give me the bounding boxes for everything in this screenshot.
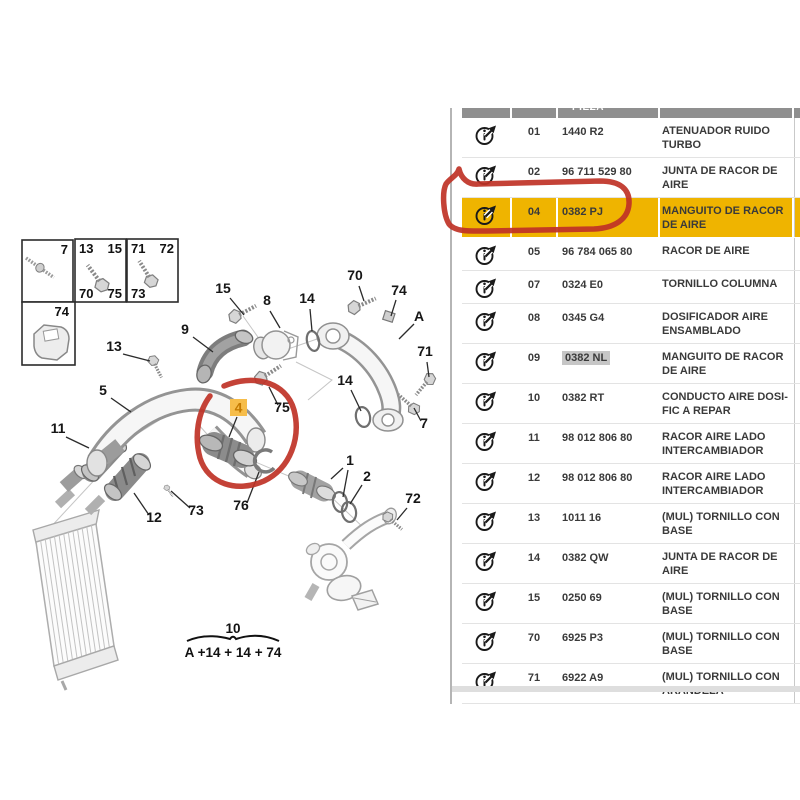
part-code-cell: 0382 QW	[558, 544, 658, 583]
leader-line	[399, 324, 414, 339]
table-row[interactable]: 09 0382 NL MANGUITO DE RACOR DE AIRE	[462, 344, 800, 384]
part-label-70: 70	[347, 267, 363, 283]
legend-num-71: 71	[131, 241, 145, 256]
info-link-button[interactable]	[462, 624, 510, 663]
part-label-1: 1	[346, 452, 354, 468]
part-code-cell: 6925 P3	[558, 624, 658, 663]
table-bottom-strip	[452, 686, 800, 692]
info-link-button[interactable]	[462, 344, 510, 383]
info-arrow-icon	[475, 310, 497, 332]
leader-line	[111, 398, 131, 412]
dosificador-art	[251, 331, 298, 361]
table-header: PIEZA	[462, 108, 800, 118]
table-row[interactable]: 13 1011 16 (MUL) TORNILLO CON BASE	[462, 504, 800, 544]
next-column-sliver	[794, 624, 800, 663]
table-row[interactable]: 07 0324 E0 TORNILLO COLUMNA	[462, 271, 800, 304]
table-row[interactable]: 01 1440 R2 ATENUADOR RUIDO TURBO	[462, 118, 800, 158]
info-link-button[interactable]	[462, 198, 510, 237]
info-arrow-icon	[475, 390, 497, 412]
next-column-sliver	[794, 384, 800, 423]
clamp-76-art	[255, 450, 274, 472]
part-code-cell: 96 711 529 80	[558, 158, 658, 197]
part-label-12: 12	[146, 509, 162, 525]
table-row[interactable]: 10 0382 RT CONDUCTO AIRE DOSI-FIC A REPA…	[462, 384, 800, 424]
info-arrow-icon	[475, 590, 497, 612]
header-cell-icon	[462, 108, 510, 118]
next-column-sliver	[794, 664, 800, 703]
part-label-2: 2	[363, 468, 371, 484]
info-link-button[interactable]	[462, 424, 510, 463]
clip-74-art	[383, 311, 395, 323]
header-cell-next	[794, 108, 800, 118]
part-label-76: 76	[233, 497, 249, 513]
part-code-cell: 0345 G4	[558, 304, 658, 343]
info-arrow-icon	[475, 510, 497, 532]
part-label-75: 75	[274, 399, 290, 415]
part-code-cell: 1440 R2	[558, 118, 658, 157]
table-row[interactable]: 12 98 012 806 80 RACOR AIRE LADO INTERCA…	[462, 464, 800, 504]
info-link-button[interactable]	[462, 118, 510, 157]
part-code-cell: 6922 A9	[558, 664, 658, 703]
next-column-sliver	[794, 464, 800, 503]
part-description-cell: DOSIFICADOR AIRE ENSAMBLADO	[660, 304, 792, 343]
next-column-sliver	[794, 584, 800, 623]
legend-num-7: 7	[61, 242, 68, 257]
info-link-button[interactable]	[462, 584, 510, 623]
part-description-cell: (MUL) TORNILLO CON BASE	[660, 624, 792, 663]
table-row[interactable]: 02 96 711 529 80 JUNTA DE RACOR DE AIRE	[462, 158, 800, 198]
part-label-15: 15	[215, 280, 231, 296]
info-arrow-icon	[475, 164, 497, 186]
info-arrow-icon	[475, 550, 497, 572]
part-description-cell: RACOR DE AIRE	[660, 238, 792, 270]
next-column-sliver	[794, 544, 800, 583]
legend-box-bracket: 74	[22, 302, 75, 365]
part-label-73: 73	[188, 502, 204, 518]
part-label-13: 13	[106, 338, 122, 354]
part-description-cell: CONDUCTO AIRE DOSI-FIC A REPAR	[660, 384, 792, 423]
part-label-4: 4	[235, 400, 243, 416]
legend-num-74: 74	[55, 304, 70, 319]
part-label-72: 72	[405, 490, 421, 506]
part-number-cell: 04	[512, 198, 556, 237]
elbow-hose-art	[195, 328, 255, 384]
part-number-cell: 12	[512, 464, 556, 503]
part-label-14: 14	[299, 290, 315, 306]
part-label-11: 11	[51, 420, 66, 436]
info-arrow-icon	[475, 124, 497, 146]
info-arrow-icon	[475, 630, 497, 652]
intercooler-art	[33, 463, 118, 690]
next-column-sliver	[794, 271, 800, 303]
leader-line	[66, 437, 89, 448]
table-row[interactable]: 08 0345 G4 DOSIFICADOR AIRE ENSAMBLADO	[462, 304, 800, 344]
leader-line	[351, 390, 361, 411]
part-number-cell: 10	[512, 384, 556, 423]
table-row[interactable]: 70 6925 P3 (MUL) TORNILLO CON BASE	[462, 624, 800, 664]
next-column-sliver	[794, 158, 800, 197]
header-cell-desc	[660, 108, 792, 118]
part-code-cell: 0250 69	[558, 584, 658, 623]
part-description-cell: (MUL) TORNILLO CON ARANDELA	[660, 664, 792, 703]
part-description-cell: TORNILLO COLUMNA	[660, 271, 792, 303]
part-label-7: 7	[420, 415, 428, 431]
leader-line	[171, 491, 190, 508]
part-number-cell: 09	[512, 344, 556, 383]
assembly-formula: 10 A +14 + 14 + 74	[185, 621, 282, 660]
next-column-sliver	[794, 424, 800, 463]
part-description-cell: JUNTA DE RACOR DE AIRE	[660, 544, 792, 583]
info-arrow-icon	[475, 470, 497, 492]
legend-box-bolt-2: 71 72 73	[127, 239, 178, 302]
part-description-cell: RACOR AIRE LADO INTERCAMBIADOR	[660, 464, 792, 503]
part-number-cell: 08	[512, 304, 556, 343]
leader-line	[123, 354, 150, 361]
leader-line	[359, 286, 364, 301]
legend-num-70: 70	[79, 286, 93, 301]
table-row[interactable]: 14 0382 QW JUNTA DE RACOR DE AIRE	[462, 544, 800, 584]
part-description-cell: MANGUITO DE RACOR DE AIRE	[660, 344, 792, 383]
part-number-cell: 07	[512, 271, 556, 303]
legend-num-73: 73	[131, 286, 145, 301]
info-arrow-icon	[475, 204, 497, 226]
part-number-cell: 14	[512, 544, 556, 583]
header-cell-code: PIEZA	[558, 108, 658, 118]
leader-line	[310, 309, 312, 331]
part-label-5: 5	[99, 382, 107, 398]
part-code-cell: 98 012 806 80	[558, 424, 658, 463]
part-number-cell: 05	[512, 238, 556, 270]
parts-table-body: 01 1440 R2 ATENUADOR RUIDO TURBO 02 96 7…	[462, 118, 800, 704]
part-number-cell: 71	[512, 664, 556, 703]
leader-line	[350, 485, 362, 504]
table-row[interactable]: 15 0250 69 (MUL) TORNILLO CON BASE	[462, 584, 800, 624]
leader-line	[397, 508, 407, 520]
next-column-sliver	[794, 238, 800, 270]
part-label-9: 9	[181, 321, 189, 337]
legend-box-bolt-1: 13 15 70 75	[75, 239, 126, 302]
info-link-button[interactable]	[462, 504, 510, 543]
info-arrow-icon	[475, 350, 497, 372]
part-code-cell: 96 784 065 80	[558, 238, 658, 270]
parts-table-panel: PIEZA 01 1440 R2 ATENUADOR RUIDO TURBO	[450, 108, 800, 704]
next-column-sliver	[794, 198, 800, 237]
part-number-cell: 01	[512, 118, 556, 157]
manifold-duct-art	[317, 311, 403, 431]
part-label-71: 71	[417, 343, 433, 359]
info-link-button[interactable]	[462, 384, 510, 423]
leader-line	[193, 337, 213, 352]
part-code-cell: 0382 PJ	[558, 198, 658, 237]
table-row[interactable]: 11 98 012 806 80 RACOR AIRE LADO INTERCA…	[462, 424, 800, 464]
info-link-button[interactable]	[462, 464, 510, 503]
part-number-cell: 15	[512, 584, 556, 623]
part-label-14: 14	[337, 372, 353, 388]
part-description-cell: (MUL) TORNILLO CON BASE	[660, 584, 792, 623]
info-link-button[interactable]	[462, 271, 510, 303]
info-link-button[interactable]	[462, 304, 510, 343]
next-column-sliver	[794, 504, 800, 543]
formula-brace	[187, 636, 279, 641]
table-row[interactable]: 71 6922 A9 (MUL) TORNILLO CON ARANDELA	[462, 664, 800, 704]
leader-line	[343, 470, 348, 497]
header-cell-num	[512, 108, 556, 118]
next-column-sliver	[794, 118, 800, 157]
part-code-cell: 0382 NL	[558, 344, 658, 383]
formula-bottom: A +14 + 14 + 74	[185, 645, 282, 660]
info-link-button[interactable]	[462, 238, 510, 270]
part-code-cell: 98 012 806 80	[558, 464, 658, 503]
part-code-cell: 0324 E0	[558, 271, 658, 303]
exploded-parts-diagram: 7 13 15 70 75 71 72 73 74	[0, 0, 460, 720]
part-number-cell: 70	[512, 624, 556, 663]
legend-num-75: 75	[108, 286, 122, 301]
part-code-cell: 0382 RT	[558, 384, 658, 423]
header-fragment: PIEZA	[572, 108, 604, 113]
info-arrow-icon	[475, 244, 497, 266]
table-row[interactable]: 05 96 784 065 80 RACOR DE AIRE	[462, 238, 800, 271]
part-description-cell: RACOR AIRE LADO INTERCAMBIADOR	[660, 424, 792, 463]
info-link-button[interactable]	[462, 664, 510, 703]
leader-line	[331, 468, 343, 479]
info-link-button[interactable]	[462, 158, 510, 197]
part-description-cell: JUNTA DE RACOR DE AIRE	[660, 158, 792, 197]
part-description-cell: (MUL) TORNILLO CON BASE	[660, 504, 792, 543]
leader-line	[270, 311, 280, 328]
table-row[interactable]: 04 0382 PJ MANGUITO DE RACOR DE AIRE	[462, 198, 800, 238]
part-description-cell: MANGUITO DE RACOR DE AIRE	[660, 198, 792, 237]
part-label-74: 74	[391, 282, 407, 298]
next-column-sliver	[794, 344, 800, 383]
info-arrow-icon	[475, 430, 497, 452]
resonator-art	[286, 469, 337, 503]
next-column-sliver	[794, 304, 800, 343]
info-link-button[interactable]	[462, 544, 510, 583]
legend-num-72: 72	[160, 241, 174, 256]
part-number-cell: 02	[512, 158, 556, 197]
formula-top: 10	[225, 621, 240, 636]
part-number-cell: 11	[512, 424, 556, 463]
legend-num-13: 13	[79, 241, 93, 256]
part-label-A: A	[414, 308, 424, 324]
info-arrow-icon	[475, 277, 497, 299]
part-description-cell: ATENUADOR RUIDO TURBO	[660, 118, 792, 157]
legend-box-stud: 7	[22, 240, 73, 302]
part-code-cell: 1011 16	[558, 504, 658, 543]
part-label-8: 8	[263, 292, 271, 308]
part-number-cell: 13	[512, 504, 556, 543]
legend-num-15: 15	[108, 241, 122, 256]
